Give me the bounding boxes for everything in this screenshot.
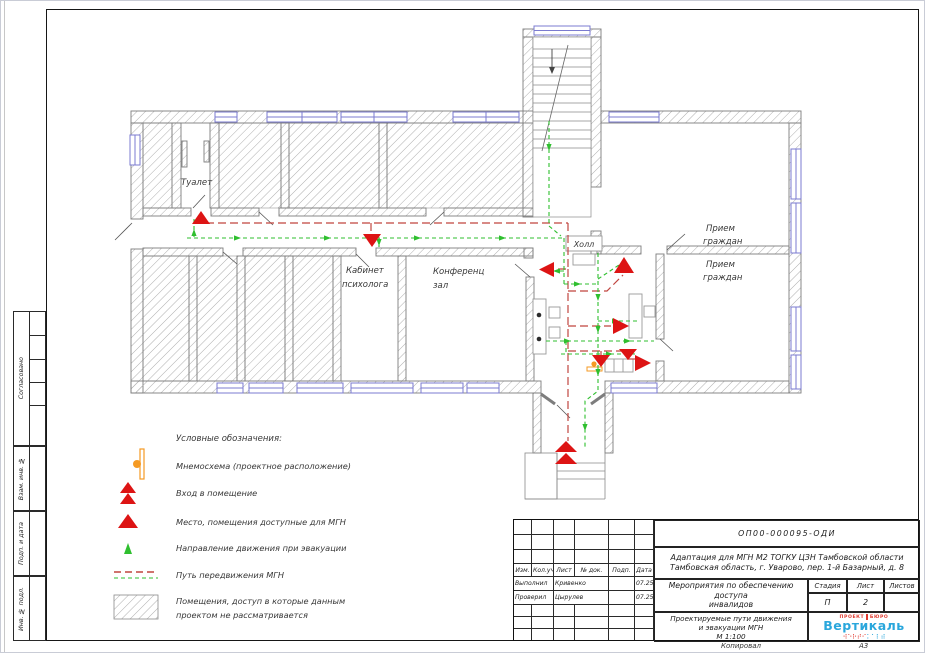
staircase	[533, 37, 591, 217]
legend-title: Условные обозначения:	[176, 434, 282, 444]
sidebar-inv-label-cell: Инв. № подл.	[14, 577, 30, 640]
sidebar-approved-label-cell: Согласовано	[14, 312, 30, 445]
legend-item-label: Вход в помещение	[176, 488, 257, 498]
room-label-reception1-1: Прием	[706, 224, 736, 234]
sidebar-approved-rows	[30, 312, 45, 445]
copied-label: Копировал	[696, 642, 786, 650]
logo-braille-blue: ⠅⠁⠇⠾	[866, 633, 885, 641]
title-block: ОП00-000095-ОДИ Адаптация для МГН М2 ТОГ…	[513, 519, 919, 641]
excluded-rooms-legend-icon	[114, 595, 158, 619]
room-label-reception2-2: граждан	[703, 273, 743, 283]
project-description: Адаптация для МГН М2 ТОГКУ ЦЗН Тамбовско…	[654, 547, 920, 579]
sheet-title: Проектируемые пути движения и эвакуации …	[654, 612, 808, 642]
logo-braille-line: ⠺⠑⠗⠞⠊⠅⠁⠇⠾	[843, 634, 886, 641]
section-line-1: Мероприятия по обеспечению доступа	[655, 581, 807, 600]
sheet-value: 2	[847, 593, 884, 612]
legend-item-label: Место, помещения доступные для МГН	[176, 517, 346, 527]
logo-company-name: Вертикаль	[823, 620, 904, 633]
stage-header: Стадия	[808, 579, 847, 593]
accessible-place-legend-icon	[118, 514, 138, 528]
project-line-2: Тамбовская область, г. Уварово, пер. 1-й…	[670, 563, 904, 573]
vzam-label: Взам. инв. №	[18, 457, 25, 500]
sidebar-approved-block: Согласовано	[13, 311, 46, 446]
legend: Условные обозначения: Мнемосхема (проект…	[114, 434, 351, 620]
sidebar-podp-label-cell: Подп. и дата	[14, 512, 30, 575]
mnemoscheme-legend-icon	[133, 449, 144, 479]
approved-label: Согласовано	[18, 357, 25, 399]
company-logo: ПРОЕКТ БЮРО Вертикаль ⠺⠑⠗⠞⠊⠅⠁⠇⠾	[808, 612, 920, 642]
sheet-title-line-2: и эвакуации МГН	[699, 623, 764, 632]
sheet-header: Лист	[847, 579, 884, 593]
room-label-hall: Холл	[573, 240, 595, 249]
sidebar-vzam-label-cell: Взам. инв. №	[14, 447, 30, 510]
legend-item-label: Направление движения при эвакуации	[176, 543, 347, 553]
room-label-reception2-1: Прием	[706, 260, 736, 270]
podp-label: Подп. и дата	[18, 522, 25, 565]
sheet-title-line-1: Проектируемые пути движения	[670, 614, 792, 623]
room-label-toilet: Туалет	[181, 178, 213, 188]
legend-item-label: Мнемосхема (проектное расположение)	[176, 461, 351, 471]
room-label-conf-1: Конференц	[433, 267, 484, 277]
sidebar-vzam-block: Взам. инв. №	[13, 446, 46, 511]
drawing-sheet: Туалет Кабинет психолога Конференц зал Х…	[0, 0, 925, 653]
section-title: Мероприятия по обеспечению доступа инвал…	[654, 579, 808, 612]
sheets-value	[884, 593, 920, 612]
document-number: ОП00-000095-ОДИ	[654, 520, 920, 547]
room-label-psych-1: Кабинет	[346, 266, 385, 276]
logo-braille-red: ⠺⠑⠗⠞⠊	[843, 633, 867, 641]
legend-item-label: Помещения, доступ в которые данным	[176, 596, 345, 606]
evacuation-direction-legend-icon	[124, 543, 132, 554]
sheets-header: Листов	[884, 579, 920, 593]
room-label-conf-2: зал	[433, 281, 449, 291]
drawing-scale: М 1:100	[716, 632, 745, 641]
format-label: А3	[859, 642, 868, 650]
room-label-psych-2: психолога	[342, 280, 388, 290]
mgn-path-legend-icon	[114, 572, 158, 578]
room-label-reception1-2: граждан	[703, 237, 743, 247]
sidebar-podp-block: Подп. и дата	[13, 511, 46, 576]
legend-item-label-2: проектом не рассматривается	[176, 610, 308, 620]
project-line-1: Адаптация для МГН М2 ТОГКУ ЦЗН Тамбовско…	[671, 553, 904, 563]
vestibule-funnel-walls	[541, 394, 605, 404]
inv-label: Инв. № подл.	[18, 587, 25, 631]
sidebar-inv-block: Инв. № подл.	[13, 576, 46, 641]
stage-value: П	[808, 593, 847, 612]
section-line-2: инвалидов	[709, 600, 753, 610]
entrance-legend-icon	[120, 482, 136, 504]
legend-item-label: Путь передвижения МГН	[176, 570, 284, 580]
